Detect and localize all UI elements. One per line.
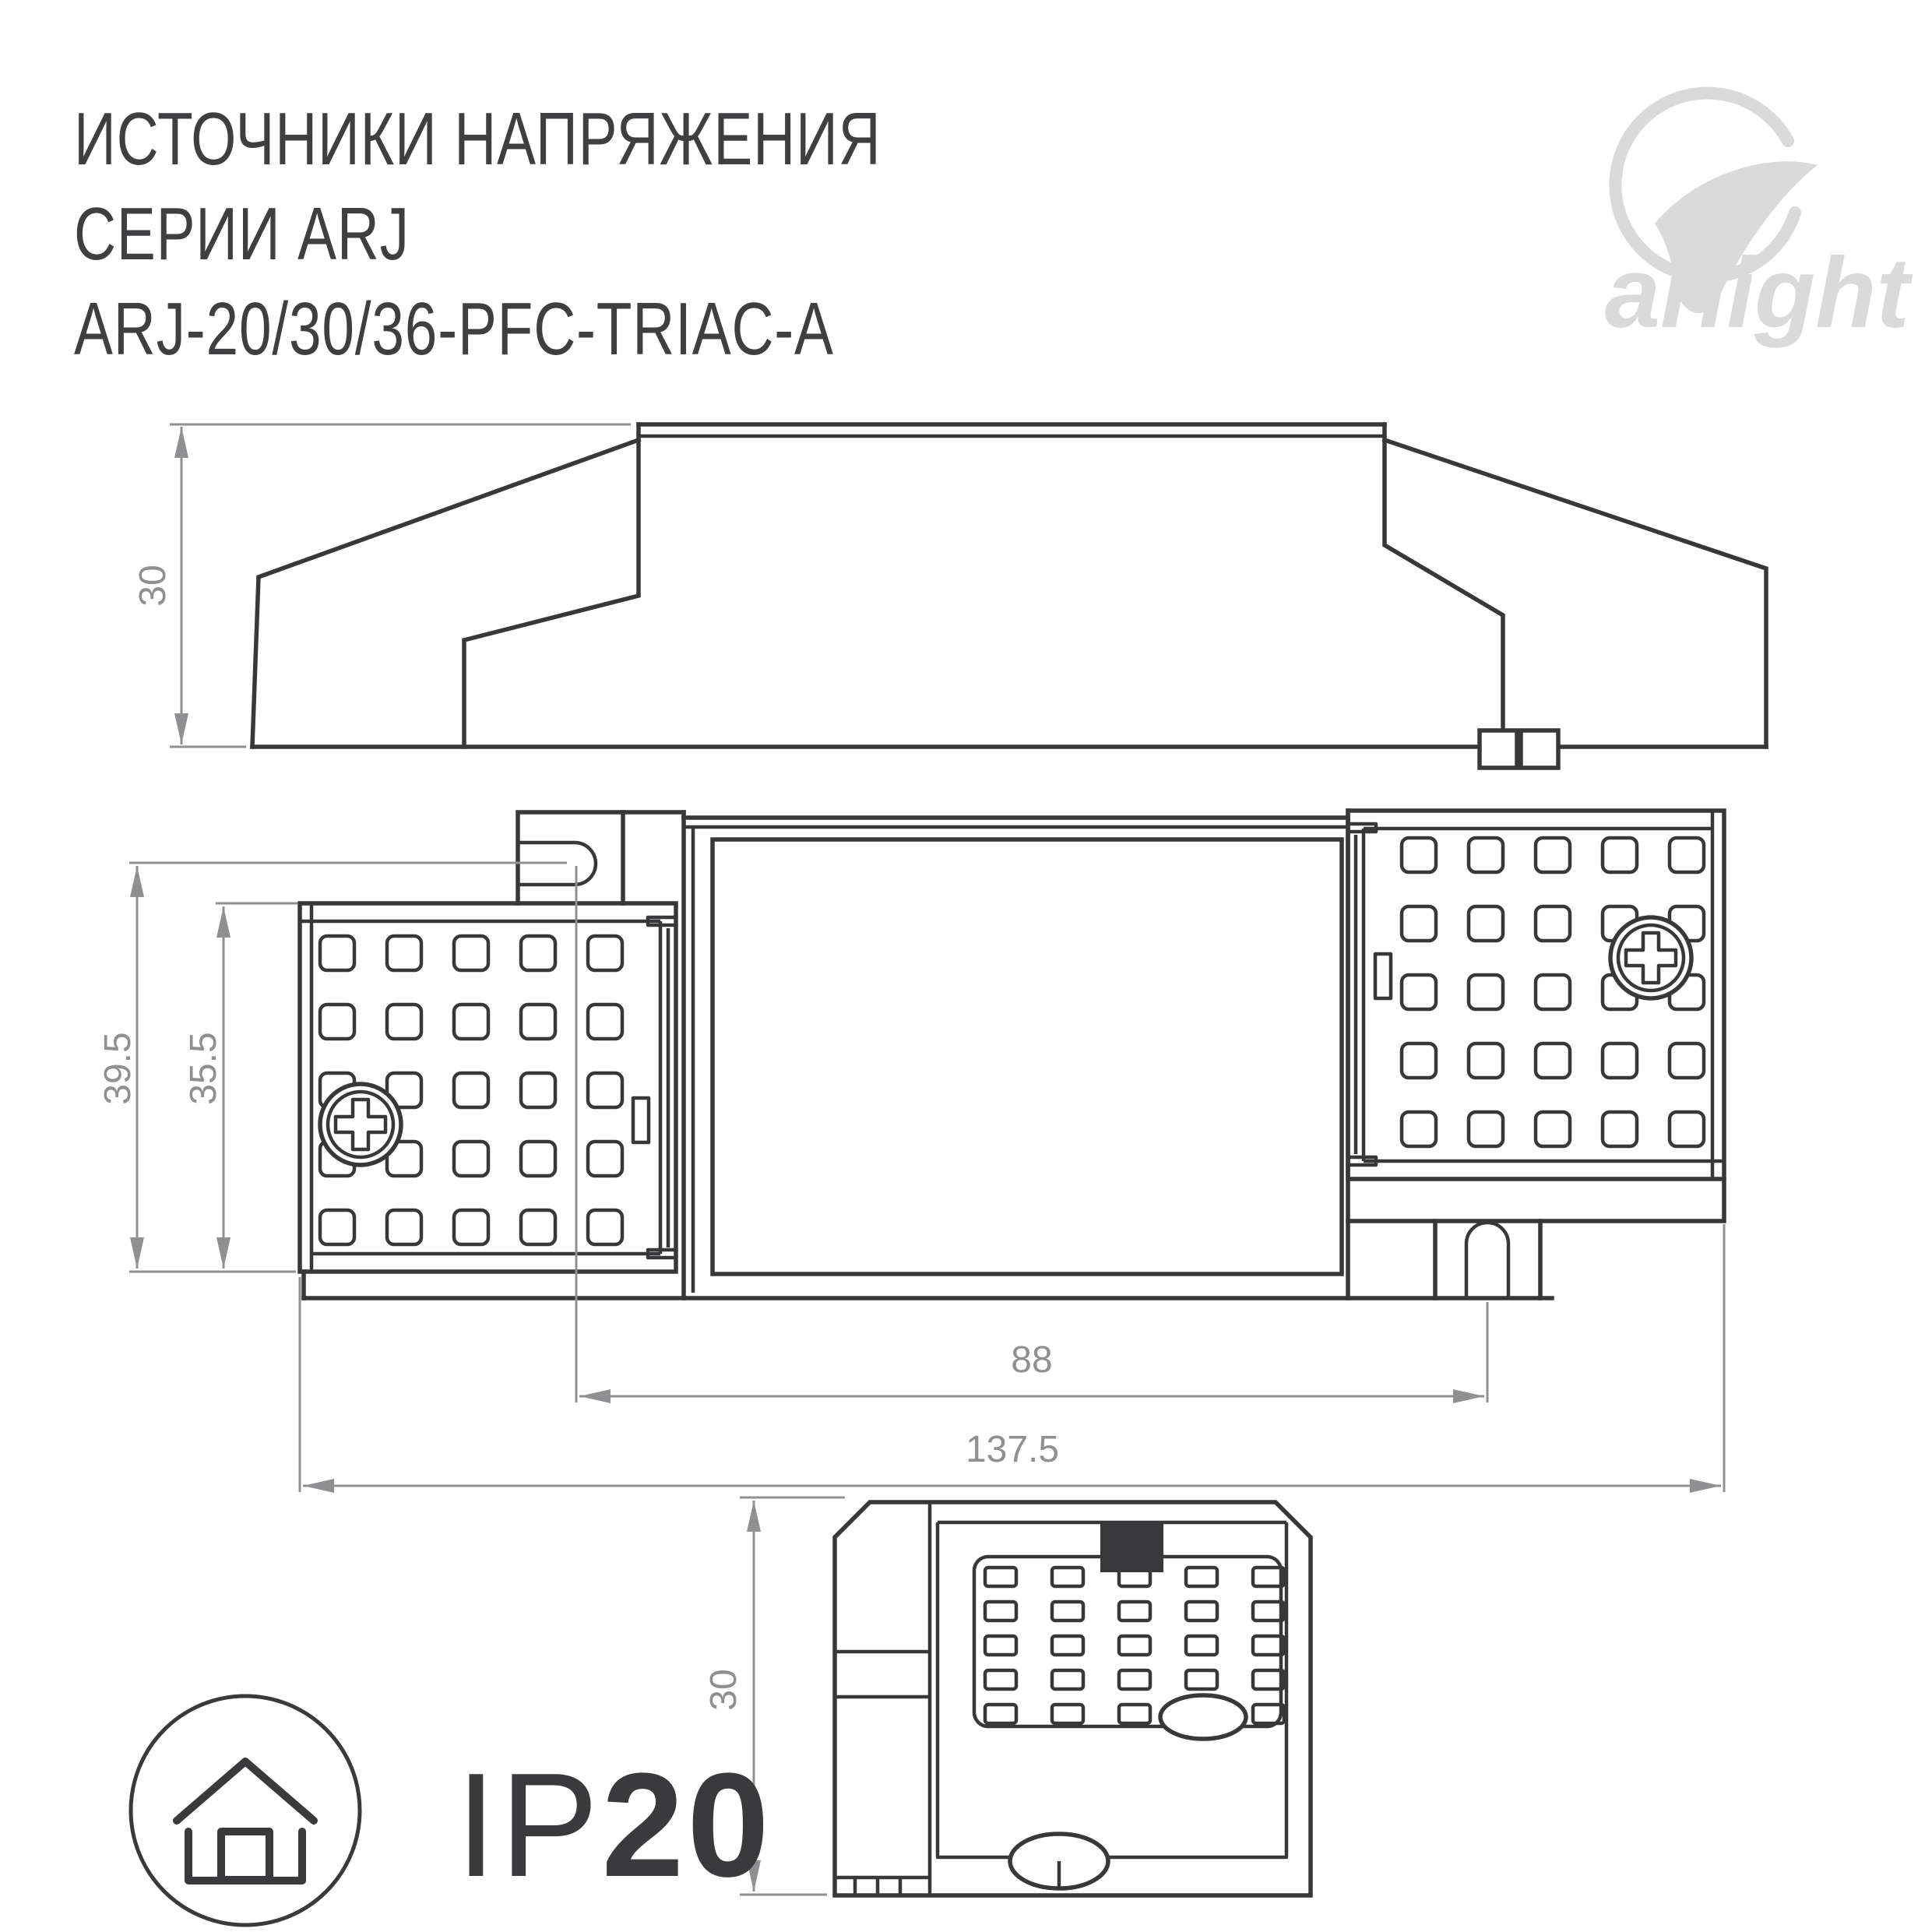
vent-hole [1402,975,1436,1009]
vent-hole [521,1073,555,1107]
vent-slot [1119,1602,1150,1621]
vent-hole [588,936,622,970]
dim-front-height-label: 30 [703,1669,744,1710]
left-wiring-cover [300,903,676,1272]
vent-hole [1469,1112,1503,1146]
screw-icon [320,1084,401,1165]
vent-hole [1603,1043,1637,1078]
mounting-foot [1521,730,1558,768]
vent-slot [985,1670,1016,1689]
vent-slot [1186,1602,1217,1621]
vent-hole [1402,838,1436,872]
label-area [713,839,1342,1274]
vent-slot [1186,1568,1217,1586]
dim-overall-height-label: 39.5 [97,1032,139,1104]
vent-slot [1119,1670,1150,1689]
vent-hole [1469,1043,1503,1078]
vent-slot [1052,1670,1083,1689]
top-view: 39.5 35.5 88 137.5 [97,811,1724,1492]
front-view: 30 [703,1497,1311,1895]
vent-hole [521,936,555,970]
ip-rating: IP20 [456,1740,772,1910]
vent-slot [985,1636,1016,1655]
datasheet-page: ИСТОЧНИКИ НАПРЯЖЕНИЯ СЕРИИ ARJ ARJ-20/30… [0,0,1932,1932]
vent-hole [454,1210,488,1244]
vent-slot [985,1602,1016,1621]
vent-hole [1670,1112,1704,1146]
cover-latch [1375,954,1391,998]
cover-latch [633,1098,649,1142]
vent-hole [454,1142,488,1176]
vent-hole [1670,838,1704,872]
knockout-oval [1160,1695,1246,1739]
vent-hole [387,1210,421,1244]
vent-slot [1052,1705,1083,1723]
vent-slot [985,1568,1016,1586]
ip-badge [131,1696,360,1925]
vent-hole [454,936,488,970]
vent-hole [1469,906,1503,941]
vent-hole [1603,838,1637,872]
vent-hole [521,1210,555,1244]
vent-hole [1402,906,1436,941]
vent-slot [1186,1636,1217,1655]
vent-hole [588,1005,622,1039]
vent-hole [521,1005,555,1039]
connector-tab [1100,1524,1163,1572]
dim-hole-spacing-label: 88 [1011,1339,1052,1381]
vent-hole [1536,1112,1570,1146]
dim-side-height-label: 30 [132,565,174,606]
ip-value: 20 [602,1743,772,1908]
dim-case-height-label: 35.5 [183,1032,224,1104]
vent-hole [1402,1112,1436,1146]
vent-slot [1186,1670,1217,1689]
vent-hole [320,1005,354,1039]
vent-hole [387,936,421,970]
vent-hole [387,1005,421,1039]
vent-slot [1119,1705,1150,1723]
vent-hole [1536,975,1570,1009]
vent-slot [1052,1636,1083,1655]
vent-hole [1469,975,1503,1009]
vent-slot [1119,1636,1150,1655]
vent-hole [320,936,354,970]
vent-hole [1536,906,1570,941]
side-view: 30 [132,424,1766,768]
vent-hole [588,1142,622,1176]
mounting-foot [1480,730,1517,768]
right-wiring-cover [1348,811,1724,1179]
vent-hole [588,1073,622,1107]
vent-grid-front [985,1568,1284,1723]
vent-hole [521,1142,555,1176]
dim-side-height: 30 [132,424,631,747]
dimension-drawing: 30 [0,0,1932,1932]
vent-slot [985,1705,1016,1723]
vent-hole [588,1210,622,1244]
vent-hole [1536,838,1570,872]
vent-hole [1402,1043,1436,1078]
screw-icon [1610,917,1691,998]
vent-hole [454,1073,488,1107]
vent-hole [320,1210,354,1244]
vent-hole [1603,1112,1637,1146]
house-indoor-icon [177,1761,314,1881]
mounting-slot [1466,1223,1508,1298]
vent-hole [1670,1043,1704,1078]
vent-hole [454,1005,488,1039]
vent-hole [1469,838,1503,872]
vent-slot [1052,1602,1083,1621]
vent-slot [1052,1568,1083,1586]
vent-hole [1536,1043,1570,1078]
dim-overall-length-label: 137.5 [966,1429,1059,1470]
dim-case-height: 35.5 [183,903,297,1269]
badge-circle [131,1696,360,1925]
ip-prefix: IP [456,1743,602,1908]
